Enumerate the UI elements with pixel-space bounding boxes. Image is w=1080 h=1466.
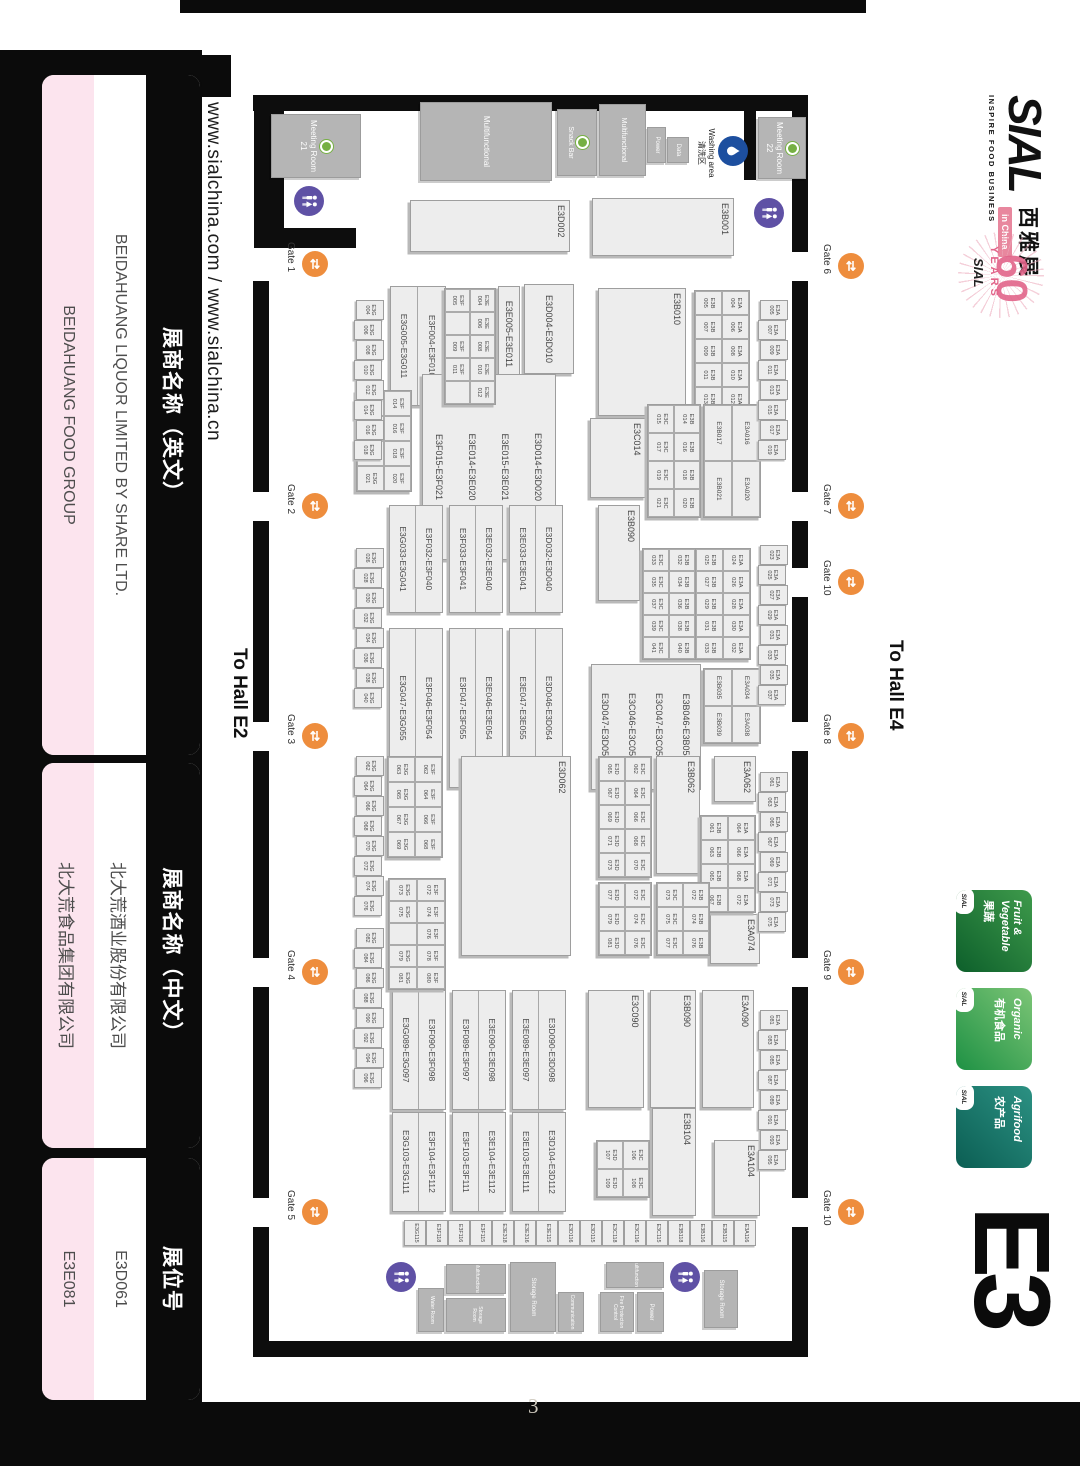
to-hall-e4-label: To Hall E4 — [884, 640, 906, 730]
booth-E3G010: E3G010 — [354, 360, 382, 380]
booth-E3B076: E3B076 — [683, 931, 709, 955]
booth-E3A073: E3A073 — [760, 892, 788, 912]
room-label: Multifunctional — [473, 1264, 479, 1294]
booth-E3G004: E3G004 — [356, 300, 384, 320]
booth-E3G008: E3G008 — [356, 340, 384, 360]
booth-block-E3B104: E3B104 — [652, 1108, 696, 1216]
hall-wall — [792, 521, 808, 568]
booth-E3A071: E3A071 — [758, 872, 786, 892]
booth-E3D081: E3D081 — [599, 931, 625, 955]
booth-E3C039: E3C039 — [643, 615, 669, 637]
meeting-room-21: Meeting Room 21 — [271, 114, 361, 178]
booth-E3A010: E3A010 — [722, 363, 749, 387]
booth-E3D109: E3D109 — [597, 1169, 623, 1197]
gate-1-bottom-icon: ⇄ — [302, 251, 328, 277]
booth-E3B118: E3B118 — [668, 1220, 690, 1246]
badge-title: Agrifood — [1010, 1086, 1032, 1168]
table-row: BEIDAHUANG FOOD GROUP — [42, 75, 94, 755]
booth-E3A081: E3A081 — [760, 1010, 788, 1030]
table-row: 北大荒食品集团有限公司 — [42, 763, 94, 1148]
booth-E3A032: E3A032 — [723, 637, 750, 659]
booth-E3A031: E3A031 — [760, 625, 788, 645]
booth-E3B061: E3B061 — [701, 816, 728, 840]
booth-E3B027: E3B027 — [696, 571, 723, 593]
booth-E3E010: E3E010 — [470, 358, 495, 381]
multifunctional-4: Multifunctional — [446, 1264, 506, 1294]
booth-E3A029: E3A029 — [758, 605, 786, 625]
booth-E3G086: E3G086 — [356, 968, 384, 988]
booth-E3B014: E3B014 — [674, 405, 700, 433]
catalog-page: SIAL INSPIRE FOOD BUSINESS 西雅展 in China … — [0, 0, 1080, 1466]
water-room: Water Room — [418, 1288, 444, 1332]
booth-label: E3F032-E3F040 — [417, 506, 443, 612]
booth-E3G021: E3G021 — [357, 466, 384, 491]
table-row: E3E081 — [42, 1158, 94, 1400]
room-icon — [786, 142, 799, 155]
booth-E3A095: E3A095 — [758, 1150, 786, 1170]
booth-E3D107: E3D107 — [597, 1141, 623, 1169]
booth-E3C064: E3C064 — [625, 781, 651, 805]
booth-E3A033: E3A033 — [758, 645, 786, 665]
exhibitor-card-2: 展位号E3D061E3E081 — [42, 1158, 200, 1400]
booth-E3A091: E3A091 — [758, 1110, 786, 1130]
booth-E3B040: E3B040 — [669, 637, 695, 659]
booth-label: E3F103-E3F111 — [453, 1113, 480, 1211]
booth-label: E3G005-E3G011 — [391, 287, 419, 405]
booth-block-E3A090: E3A090 — [702, 990, 754, 1108]
booth-E3F018: E3F018 — [384, 441, 411, 466]
booth-E3A066: E3A066 — [728, 840, 755, 864]
booth-E3A025: E3A025 — [758, 565, 786, 585]
badge-title: Organic — [1010, 988, 1032, 1070]
booth-E3B033: E3B033 — [696, 637, 723, 659]
booth-E3A085: E3A085 — [760, 1050, 788, 1070]
multifunctional-1: Multifunctional — [599, 104, 646, 176]
booth-E3A008: E3A008 — [722, 339, 749, 363]
room-label: Multifunctional — [481, 116, 490, 167]
booth-E3G092: E3G092 — [354, 1028, 382, 1048]
room-label: Storage Room — [530, 1278, 537, 1317]
booth-label: E3E090-E3E098 — [480, 991, 506, 1109]
gate-6-top-icon: ⇄ — [838, 253, 864, 279]
booth-E3G012: E3G012 — [356, 380, 384, 400]
booth-E3A026: E3A026 — [723, 571, 750, 593]
booth-label: E3C090 — [630, 995, 640, 1028]
booth-E3A007: E3A007 — [758, 320, 786, 340]
restroom-icon — [670, 1262, 700, 1292]
booth-E3G082: E3G082 — [356, 928, 384, 948]
booth-E3G063: E3G063 — [388, 757, 415, 782]
gate-8-top-icon: ⇄ — [838, 723, 864, 749]
gate-4-bottom-icon: ⇄ — [302, 959, 328, 985]
left-bleed-bar — [180, 0, 866, 13]
booth-E3A005: E3A005 — [760, 300, 788, 320]
booth-E3G006: E3G006 — [354, 320, 382, 340]
sial-tab: SIAL — [956, 988, 974, 1012]
booth-E3A030: E3A030 — [723, 615, 750, 637]
booth-E3G070: E3G070 — [356, 836, 384, 856]
booth-E3F014: E3F014 — [384, 391, 411, 416]
badge-agrifood: Agrifood农产品SIAL — [956, 1086, 1032, 1168]
booth-E3A027: E3A027 — [760, 585, 788, 605]
booth-E3E006: E3E006 — [470, 312, 495, 335]
room-label: Power — [647, 1303, 654, 1320]
booth-E3F115: E3F115 — [470, 1220, 492, 1246]
60-years-label: YEARS — [988, 246, 1000, 299]
booth-E3G084: E3G084 — [354, 948, 382, 968]
table-row: 北大荒酒业股份有限公司 — [94, 763, 146, 1148]
booth-label: E3E103-E3E111 — [513, 1113, 540, 1211]
booth-label: E3A104 — [746, 1145, 756, 1177]
booth-label: E3B090 — [626, 510, 636, 542]
page-number: 3 — [528, 1394, 539, 1419]
booth-E3A061: E3A061 — [760, 772, 788, 792]
booth-E3F020: E3F020 — [384, 466, 411, 491]
booth-block-E3D002: E3D002 — [410, 200, 570, 252]
booth-E3B016: E3B016 — [674, 433, 700, 461]
room-label: Water Room — [428, 1296, 434, 1324]
booth-E3C021: E3C021 — [648, 489, 674, 517]
booth-E3A093: E3A093 — [760, 1130, 788, 1150]
room-label: Power — [653, 136, 660, 153]
booth-block-E3F090-E3F098: E3F090-E3F098E3G089-E3G097 — [392, 990, 446, 1110]
booth-E3A011: E3A011 — [758, 360, 786, 380]
snack-bar: Snack Bar — [557, 109, 597, 176]
storage-room-1: Storage Room — [704, 1270, 738, 1328]
booth-grid: E3C106E3C108E3D107E3D109 — [596, 1140, 650, 1198]
storage-room-2: Storage Room — [510, 1262, 556, 1332]
restroom-icon — [386, 1262, 416, 1292]
booth-E3B072: E3B072 — [683, 883, 709, 907]
booth-E3G072: E3G072 — [354, 856, 382, 876]
gate-2-bottom-icon: ⇄ — [302, 493, 328, 519]
booth-E3G075: E3G075 — [389, 901, 417, 923]
room-label: Storage Room — [470, 1299, 482, 1331]
booth-E3F011: E3F011 — [445, 358, 470, 381]
booth-E3A006: E3A006 — [722, 315, 749, 339]
booth-E3D065: E3D065 — [599, 757, 625, 781]
room-icon — [576, 136, 589, 149]
booth-E3B009: E3B009 — [695, 339, 722, 363]
booth-E3F072: E3F072 — [417, 879, 445, 901]
booth-E3G094: E3G094 — [356, 1048, 384, 1068]
booth-E3A037: E3A037 — [758, 685, 786, 705]
booth-block-E3D062: E3D062 — [461, 756, 571, 956]
booth-label: E3D104-E3D112 — [540, 1113, 566, 1211]
data-room: Data — [667, 137, 689, 163]
booth-E3E316: E3E316 — [514, 1220, 536, 1246]
booth-E3E008: E3E008 — [470, 335, 495, 358]
multifunctional-3: Multifunctional — [606, 1262, 664, 1288]
booth-label: E3D090-E3D098 — [540, 991, 566, 1109]
booth-E3D073: E3D073 — [599, 853, 625, 877]
booth-E3A035: E3A035 — [760, 665, 788, 685]
booth-E3G034: E3G034 — [356, 628, 384, 648]
booth-label: E3E032-E3E040 — [477, 506, 503, 612]
booth-grid: E3A034E3A038E3B035E3B039 — [703, 668, 761, 744]
gate-2-bottom-label: Gate 2 — [285, 484, 296, 514]
gate-10-top-icon: ⇄ — [838, 1199, 864, 1225]
booth-E3G066: E3G066 — [356, 796, 384, 816]
booth-E3C118: E3C118 — [602, 1220, 624, 1246]
booth-E3A038: E3A038 — [732, 706, 760, 743]
booth-block-E3A104: E3A104 — [714, 1140, 760, 1216]
hall-wall — [792, 1227, 808, 1341]
booth-E3G016: E3G016 — [356, 420, 384, 440]
booth-E3G073: E3G073 — [389, 879, 417, 901]
booth-block-E3B010: E3B010 — [598, 288, 686, 416]
booth-grid: E3F072E3F074E3F076E3F078E3F080E3G073E3G0… — [388, 878, 446, 990]
booth-E3B035: E3B035 — [704, 669, 732, 706]
gate-7-top-label: Gate 7 — [821, 484, 832, 514]
booth-block-E3B001: E3B001 — [592, 198, 734, 256]
booth-empty — [445, 381, 470, 404]
booth-E3A116: E3A116 — [734, 1220, 756, 1246]
washing-area-label: Washing area清洗区 — [697, 118, 716, 188]
booth-E3E318: E3E318 — [492, 1220, 514, 1246]
booth-label: E3D004-E3D010 — [544, 285, 554, 373]
booth-E3D079: E3D079 — [599, 907, 625, 931]
booth-empty — [445, 312, 470, 335]
booth-label: E3B001 — [720, 203, 730, 235]
booth-label: E3F089-E3F097 — [453, 991, 480, 1109]
booth-E3C072: E3C072 — [625, 883, 651, 907]
booth-grid: E3B014E3B016E3B018E3B020E3C015E3C017E3C0… — [647, 404, 701, 518]
booth-label: E3B104 — [682, 1113, 692, 1145]
booth-E3D077: E3D077 — [599, 883, 625, 907]
booth-E3G065: E3G065 — [388, 782, 415, 807]
table-header: 展商名称（中文） — [146, 763, 200, 1148]
booth-grid: E3C072E3C074E3C076E3D077E3D079E3D081 — [598, 882, 652, 956]
booth-E3A019: E3A019 — [758, 440, 786, 460]
booth-grid: E3A016E3A020E3B017E3B021 — [703, 404, 761, 518]
booth-block-E3F032-E3F040: E3F032-E3F040E3G033-E3G041 — [389, 505, 443, 613]
booth-E3B017: E3B017 — [704, 405, 732, 461]
booth-E3G096: E3G096 — [354, 1068, 382, 1088]
booth-E3C062: E3C062 — [625, 757, 651, 781]
booth-E3B039: E3B039 — [704, 706, 732, 743]
booth-E3C033: E3C033 — [643, 549, 669, 571]
booth-E3F078: E3F078 — [417, 945, 445, 967]
booth-E3F080: E3F080 — [417, 967, 445, 989]
booth-grid: E3F062E3F064E3F066E3F068E3G063E3G065E3G0… — [387, 756, 443, 858]
badge-organic: Organic有机食品SIAL — [956, 988, 1032, 1070]
gate-5-bottom-icon: ⇄ — [302, 1199, 328, 1225]
booth-E3C041: E3C041 — [643, 637, 669, 659]
booth-E3B021: E3B021 — [704, 461, 732, 517]
restroom-icon — [294, 186, 324, 216]
booth-E3B038: E3B038 — [669, 615, 695, 637]
booth-E3B029: E3B029 — [696, 593, 723, 615]
booth-E3C068: E3C068 — [625, 829, 651, 853]
booth-E3F068: E3F068 — [415, 832, 442, 857]
booth-label: E3G033-E3G041 — [390, 506, 417, 612]
booth-E3B018: E3B018 — [674, 461, 700, 489]
booth-grid: E3C062E3C064E3C066E3C068E3C070E3D065E3D0… — [598, 756, 652, 878]
booth-E3C115: E3C115 — [646, 1220, 668, 1246]
hall-wall — [253, 751, 269, 958]
booth-E3E004: E3E004 — [470, 289, 495, 312]
booth-E3B034: E3B034 — [669, 571, 695, 593]
booth-label: E3B090 — [682, 995, 692, 1027]
hall-id-title: E3 — [958, 1206, 1066, 1326]
booth-block-E3E104-E3E112: E3E104-E3E112E3F103-E3F111 — [452, 1112, 506, 1212]
booth-E3C066: E3C066 — [625, 805, 651, 829]
gate-5-bottom-label: Gate 5 — [285, 1190, 296, 1220]
booth-E3C116: E3C116 — [624, 1220, 646, 1246]
booth-E3C074: E3C074 — [625, 907, 651, 931]
booth-label: E3B062 — [686, 761, 696, 793]
booth-E3G018: E3G018 — [354, 440, 382, 460]
gate-9-top-label: Gate 9 — [821, 950, 832, 980]
booth-E3C106: E3C106 — [623, 1141, 649, 1169]
gate-9-top-icon: ⇄ — [838, 959, 864, 985]
booth-E3G032: E3G032 — [354, 608, 382, 628]
booth-E3A087: E3A087 — [758, 1070, 786, 1090]
room-label: Communication — [568, 1295, 574, 1330]
room-label: Meeting Room 21 — [299, 115, 317, 177]
booth-block-E3D090-E3D098: E3D090-E3D098E3E089-E3E097 — [512, 990, 566, 1110]
booth-E3G064: E3G064 — [354, 776, 382, 796]
booth-E3B074: E3B074 — [683, 907, 709, 931]
room-icon — [320, 140, 333, 153]
badge-fruit-vegetable: Fruit & Vegetable果蔬SIAL — [956, 890, 1032, 972]
booth-E3C037: E3C037 — [643, 593, 669, 615]
booth-label: E3G103-E3G111 — [393, 1113, 420, 1211]
booth-label: E3A074 — [746, 919, 756, 951]
booth-E3A016: E3A016 — [732, 405, 760, 461]
gate-7-top-icon: ⇄ — [838, 493, 864, 519]
booth-E3C019: E3C019 — [648, 461, 674, 489]
booth-block-E3E032-E3E040: E3E032-E3E040E3F033-E3F041 — [449, 505, 503, 613]
badge-title-cn: 果蔬 — [981, 890, 999, 972]
booth-grid: E3B032E3B034E3B036E3B038E3B040E3C033E3C0… — [642, 548, 696, 660]
booth-E3A089: E3A089 — [760, 1090, 788, 1110]
room-label: Fire Protection Control — [611, 1293, 623, 1331]
booth-block-E3D104-E3D112: E3D104-E3D112E3E103-E3E111 — [512, 1112, 566, 1212]
booth-E3D069: E3D069 — [599, 805, 625, 829]
communication-room: Communication — [558, 1292, 584, 1332]
booth-grid: E3A004E3A006E3A008E3A010E3A012E3B005E3B0… — [694, 290, 750, 412]
booth-E3D067: E3D067 — [599, 781, 625, 805]
booth-E3A015: E3A015 — [758, 400, 786, 420]
booth-E3A064: E3A064 — [728, 816, 755, 840]
booth-label: E3F104-E3F112 — [420, 1113, 446, 1211]
booth-E3B115: E3B115 — [712, 1220, 734, 1246]
booth-E3C075: E3C075 — [657, 907, 683, 931]
sial-60-years-mark: 60 YEARS SIAL — [958, 232, 1044, 318]
website-url: www.sialchina.com / www.sialchina.cn — [202, 100, 228, 468]
hall-wall — [744, 95, 756, 180]
booth-E3A069: E3A069 — [760, 852, 788, 872]
badge-title-cn: 有机食品 — [992, 988, 1010, 1070]
booth-label: E3B010 — [672, 293, 682, 325]
room-label: Multifunctional — [632, 1262, 638, 1288]
booth-block-E3E005-E3E011: E3E005-E3E011 — [498, 286, 520, 382]
exhibitor-card-1: 展商名称（中文）北大荒酒业股份有限公司北大荒食品集团有限公司 — [42, 763, 200, 1148]
booth-E3A075: E3A075 — [758, 912, 786, 932]
washing-area-icon — [718, 136, 748, 166]
landscape-stage: SIAL INSPIRE FOOD BUSINESS 西雅展 in China … — [0, 0, 1080, 1466]
booth-E3C073: E3C073 — [657, 883, 683, 907]
hall-wall — [253, 987, 269, 1198]
booth-E3A068: E3A068 — [728, 864, 755, 888]
booth-E3C015: E3C015 — [648, 405, 674, 433]
sial-tab: SIAL — [956, 1086, 974, 1110]
booth-E3B116: E3B116 — [690, 1220, 712, 1246]
booth-E3G028: E3G028 — [354, 568, 382, 588]
hall-wall — [253, 281, 269, 492]
booth-E3B063: E3B063 — [701, 840, 728, 864]
booth-E3A083: E3A083 — [758, 1030, 786, 1050]
booth-E3A072: E3A072 — [728, 888, 755, 912]
booth-E3B020: E3B020 — [674, 489, 700, 517]
booth-grid: E3E004E3E006E3E008E3E010E3E012E3F005E3F0… — [444, 288, 496, 405]
booth-E3E012: E3E012 — [470, 381, 495, 404]
booth-E3A067: E3A067 — [758, 832, 786, 852]
booth-block-E3B090: E3B090 — [598, 505, 640, 601]
booth-E3A009: E3A009 — [760, 340, 788, 360]
booth-E3E115: E3E115 — [536, 1220, 558, 1246]
booth-E3G090: E3G090 — [356, 1008, 384, 1028]
gate-4-bottom-label: Gate 4 — [285, 950, 296, 980]
booth-block-E3F104-E3F112: E3F104-E3F112E3G103-E3G111 — [392, 1112, 446, 1212]
right-bleed-bar — [0, 1402, 1080, 1466]
booth-label: E3G089-E3G097 — [393, 991, 420, 1109]
booth-label: E3E005-E3E011 — [504, 287, 514, 381]
booth-block-E3E090-E3E098: E3E090-E3E098E3F089-E3F097 — [452, 990, 506, 1110]
booth-E3G026: E3G026 — [356, 548, 384, 568]
hall-wall — [253, 521, 269, 722]
booth-E3C035: E3C035 — [643, 571, 669, 593]
booth-E3G038: E3G038 — [356, 668, 384, 688]
booth-E3A004: E3A004 — [722, 291, 749, 315]
booth-E3G062: E3G062 — [356, 756, 384, 776]
booth-E3A024: E3A024 — [723, 549, 750, 571]
table-row: E3D061 — [94, 1158, 146, 1400]
gate-8-top-label: Gate 8 — [821, 714, 832, 744]
table-row: BEIDAHUANG LIQUOR LIMITED BY SHARE LTD. — [94, 75, 146, 755]
room-label: Storage Room — [718, 1280, 725, 1319]
booth-label: E3E089-E3E097 — [513, 991, 540, 1109]
booth-block-E3B062: E3B062 — [656, 756, 700, 874]
booth-block-E3D004-E3D010: E3D004-E3D010 — [524, 284, 574, 374]
booth-E3G079: E3G079 — [389, 945, 417, 967]
power-room-1: Power — [647, 127, 666, 163]
booth-E3F118: E3F118 — [426, 1220, 448, 1246]
hall-wall — [792, 597, 808, 722]
booth-grid: E3B072E3B074E3B076E3C073E3C075E3C077 — [656, 882, 710, 956]
booth-E3G036: E3G036 — [354, 648, 382, 668]
booth-block-E3C014: E3C014 — [590, 418, 646, 498]
booth-block-E3A062: E3A062 — [714, 756, 756, 802]
multifunctional-2: Multifunctional — [420, 102, 552, 181]
badge-title-cn: 农产品 — [992, 1086, 1010, 1168]
booth-E3F066: E3F066 — [415, 807, 442, 832]
gate-3-bottom-label: Gate 3 — [285, 714, 296, 744]
booth-E3D071: E3D071 — [599, 829, 625, 853]
booth-empty — [389, 923, 417, 945]
booth-E3F062: E3F062 — [415, 757, 442, 782]
booth-grid: E3A024E3A026E3A028E3A030E3A032E3B025E3B0… — [695, 548, 751, 660]
hall-wall — [792, 751, 808, 958]
booth-E3B011: E3B011 — [695, 363, 722, 387]
booth-E3D116: E3D116 — [558, 1220, 580, 1246]
booth-label: E3D062 — [557, 761, 567, 794]
booth-E3F116: E3F116 — [448, 1220, 470, 1246]
gate-1-bottom-label: Gate 1 — [285, 242, 296, 272]
hall-wall — [792, 281, 808, 492]
